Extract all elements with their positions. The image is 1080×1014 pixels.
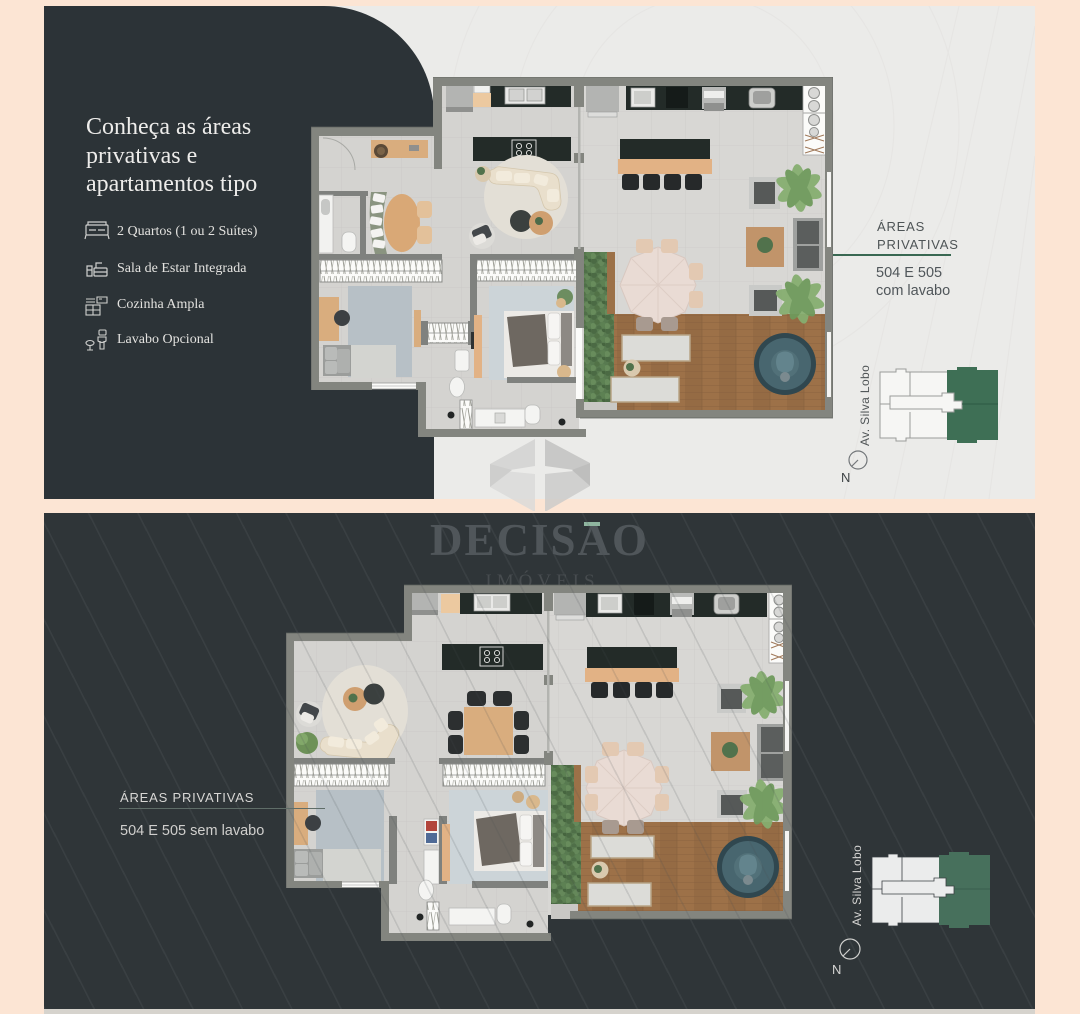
svg-text:N: N [832, 962, 841, 977]
svg-text:N: N [841, 470, 850, 485]
